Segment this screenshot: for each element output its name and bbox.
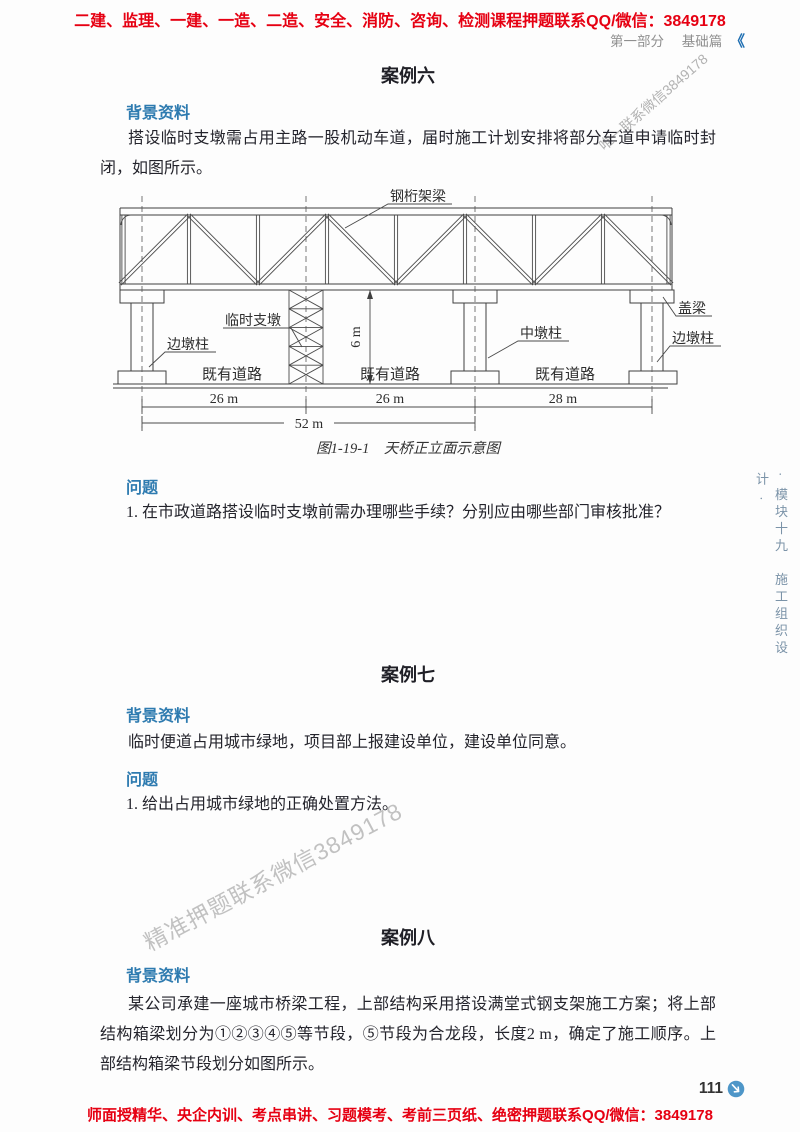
case6-background-label: 背景资料 — [126, 99, 190, 123]
temp-support-label: 临时支墩 — [225, 313, 281, 329]
case8-title: 案例八 — [100, 924, 716, 950]
case8-background-label: 背景资料 — [126, 962, 190, 986]
girder-label: 钢桁架梁 — [390, 189, 446, 205]
case7-background-text: 临时便道占用城市绿地，项目部上报建设单位，建设单位同意。 — [100, 728, 716, 758]
footer: 111 — [699, 1080, 745, 1098]
total-dimension-line: 52 m — [142, 416, 475, 432]
callouts: 钢桁架梁 临时支墩 边墩柱 中墩柱 盖梁 边墩柱 既有道路 既有道路 既有道路 — [149, 189, 721, 383]
span-dimension-line: 26 m 26 m 28 m — [142, 392, 652, 414]
road-label-1: 既有道路 — [202, 366, 262, 383]
page-leaf-icon — [727, 1080, 745, 1098]
road-label-3: 既有道路 — [535, 366, 595, 383]
case6-question-1: 1. 在市政道路搭设临时支墩前需办理哪些手续？分别应由哪些部门审核批准？ — [126, 500, 716, 526]
header-part: 第一部分 — [610, 34, 664, 49]
case7-question-1: 1. 给出占用城市绿地的正确处置方法。 — [126, 792, 716, 818]
temp-support-leader-line — [223, 328, 302, 347]
total-dim-label: 52 m — [295, 417, 324, 432]
span1-dim-label: 26 m — [210, 392, 239, 407]
case7-title: 案例七 — [100, 661, 716, 687]
mid-pier-label: 中墩柱 — [520, 326, 562, 342]
case7-question-label: 问题 — [126, 766, 158, 790]
top-promo-banner: 二建、监理、一建、一造、二造、安全、消防、咨询、检测课程押题联系QQ/微信：38… — [0, 7, 800, 31]
case6-question-label: 问题 — [126, 474, 158, 498]
side-pier-right-leader-line — [657, 346, 721, 362]
page-number: 111 — [699, 1080, 723, 1098]
case6-title: 案例六 — [100, 62, 716, 88]
side-pier-left-leader-line — [149, 352, 216, 367]
page-header: 第一部分 基础篇 《 — [610, 30, 745, 51]
bottom-promo-banner: 师面授精华、央企内训、考点串讲、习题模考、考前三页纸、绝密押题联系QQ/微信：3… — [0, 1104, 800, 1125]
case6-background-text: 搭设临时支墩需占用主路一股机动车道，届时施工计划安排将部分车道申请临时封闭，如图… — [100, 124, 716, 184]
span3-dim-label: 28 m — [549, 392, 578, 407]
side-pier-right-label: 边墩柱 — [672, 331, 714, 347]
header-section: 基础篇 — [682, 34, 723, 49]
side-pier-left-label: 边墩柱 — [167, 337, 209, 353]
mid-pier-leader-line — [488, 341, 569, 358]
truss-girder — [120, 208, 672, 290]
header-bracket-icon: 《 — [730, 33, 745, 50]
road-line — [113, 384, 668, 388]
case8-background-text: 某公司承建一座城市桥梁工程，上部结构采用搭设满堂式钢支架施工方案；将上部结构箱梁… — [100, 990, 716, 1080]
sidebar-module-title: · 模块十九 施工组织设计 · — [752, 472, 790, 662]
height-dim-label: 6 m — [349, 326, 364, 348]
bridge-elevation-diagram: 6 m 钢桁架梁 临时支墩 边墩柱 中墩柱 盖梁 边墩柱 既有道路 既有道路 既… — [108, 186, 752, 436]
figure-caption: 图1-19-1 天桥正立面示意图 — [100, 437, 716, 458]
road-label-2: 既有道路 — [360, 366, 420, 383]
truss-members — [119, 214, 673, 285]
cap-beam-label: 盖梁 — [678, 301, 706, 317]
span2-dim-label: 26 m — [376, 392, 405, 407]
case7-background-label: 背景资料 — [126, 702, 190, 726]
right-side-pier — [629, 290, 677, 384]
